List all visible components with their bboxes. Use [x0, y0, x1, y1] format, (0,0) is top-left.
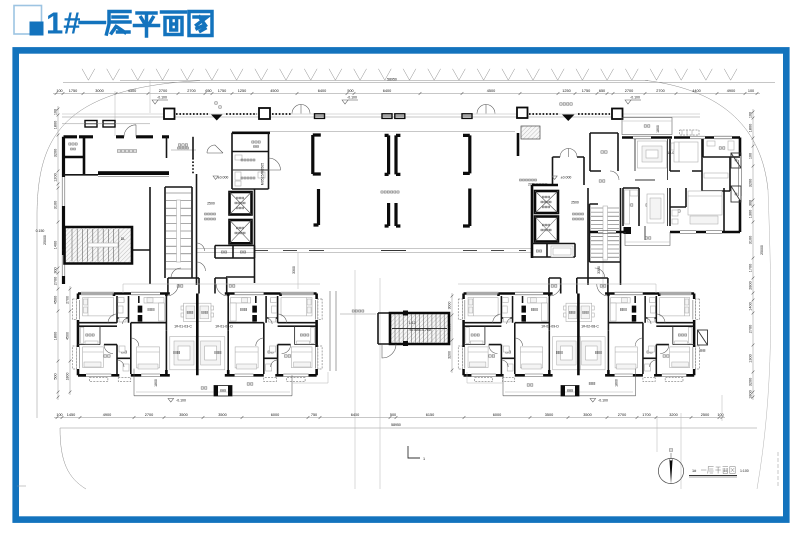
svg-text:2700: 2700 — [159, 89, 167, 93]
svg-text:1#-01-05-D: 1#-01-05-D — [215, 324, 233, 328]
svg-text:1800: 1800 — [65, 373, 69, 381]
svg-text:1#-01-03-C: 1#-01-03-C — [174, 324, 192, 328]
svg-text:100: 100 — [53, 109, 57, 115]
svg-text:1300: 1300 — [748, 354, 752, 362]
svg-text:6150: 6150 — [426, 413, 434, 417]
svg-text:100: 100 — [748, 89, 754, 93]
svg-text:3300: 3300 — [292, 266, 296, 274]
svg-text:25000: 25000 — [760, 245, 764, 255]
svg-text:1800: 1800 — [748, 390, 752, 398]
svg-text:25000: 25000 — [43, 235, 47, 245]
svg-text:4500: 4500 — [487, 89, 495, 93]
svg-text:3500: 3500 — [583, 413, 591, 417]
svg-text:3200: 3200 — [53, 149, 57, 157]
svg-text:4300: 4300 — [128, 89, 136, 93]
svg-text:1800: 1800 — [748, 124, 752, 132]
svg-text:2500: 2500 — [571, 201, 579, 205]
svg-text:100: 100 — [56, 89, 62, 93]
svg-text:1800: 1800 — [656, 125, 660, 133]
svg-text:1: 1 — [423, 457, 425, 461]
svg-text:2700: 2700 — [618, 413, 626, 417]
svg-text:1#-02-09-D: 1#-02-09-D — [541, 324, 559, 328]
svg-text:3200: 3200 — [748, 179, 752, 187]
svg-text:M0515/M0505: M0515/M0505 — [261, 163, 265, 185]
svg-text:1:100: 1:100 — [740, 469, 749, 473]
svg-text:58950: 58950 — [391, 423, 401, 427]
svg-text:3500: 3500 — [218, 413, 226, 417]
svg-text:100: 100 — [56, 413, 62, 417]
svg-text:1:12: 1:12 — [409, 321, 416, 325]
svg-text:2500: 2500 — [701, 413, 709, 417]
svg-text:4500: 4500 — [270, 89, 278, 93]
svg-text:2700: 2700 — [187, 89, 195, 93]
svg-text:100: 100 — [748, 153, 752, 159]
svg-text:±0.000: ±0.000 — [561, 176, 572, 180]
svg-text:1750: 1750 — [69, 89, 77, 93]
svg-text:1#: 1# — [46, 6, 80, 41]
svg-text:3100: 3100 — [53, 201, 57, 209]
svg-text:2800: 2800 — [748, 281, 752, 289]
svg-text:1400: 1400 — [53, 241, 57, 249]
svg-text:1800: 1800 — [615, 379, 619, 387]
svg-text:6000: 6000 — [493, 413, 501, 417]
svg-text:4900: 4900 — [727, 89, 735, 93]
svg-text:3200: 3200 — [748, 378, 752, 386]
svg-text:3500: 3500 — [545, 413, 553, 417]
svg-text:±0.000: ±0.000 — [218, 176, 229, 180]
svg-text:-0.100: -0.100 — [347, 96, 357, 100]
svg-text:1450: 1450 — [67, 413, 75, 417]
svg-text:2500: 2500 — [207, 202, 215, 206]
svg-text:4400: 4400 — [692, 89, 700, 93]
svg-text:2700: 2700 — [748, 325, 752, 333]
svg-text:1700: 1700 — [748, 264, 752, 272]
svg-text:6400: 6400 — [318, 89, 326, 93]
svg-text:6000: 6000 — [271, 413, 279, 417]
svg-text:1250: 1250 — [562, 89, 570, 93]
svg-text:500: 500 — [53, 373, 57, 379]
svg-text:-0.100: -0.100 — [176, 399, 186, 403]
svg-text:300: 300 — [748, 200, 752, 206]
svg-text:1400: 1400 — [748, 302, 752, 310]
svg-text:1750: 1750 — [218, 89, 226, 93]
svg-text:1800: 1800 — [53, 332, 57, 340]
svg-text:4500: 4500 — [53, 296, 57, 304]
svg-text:300: 300 — [53, 267, 57, 273]
svg-text:3200: 3200 — [669, 413, 677, 417]
svg-text:2700: 2700 — [65, 296, 69, 304]
svg-text:3100: 3100 — [748, 236, 752, 244]
svg-text:-0.100: -0.100 — [598, 399, 608, 403]
svg-text:1800: 1800 — [53, 121, 57, 129]
svg-text:-0.100: -0.100 — [157, 96, 167, 100]
svg-text:±0.000/-0.700: ±0.000/-0.700 — [409, 328, 431, 332]
svg-text:500: 500 — [347, 89, 353, 93]
svg-text:6400: 6400 — [383, 89, 391, 93]
svg-text:3000: 3000 — [447, 302, 451, 310]
svg-text:2700: 2700 — [53, 277, 57, 285]
svg-text:0.150: 0.150 — [36, 229, 45, 233]
svg-text:58950: 58950 — [387, 78, 397, 82]
svg-text:1750: 1750 — [582, 89, 590, 93]
svg-text:4900: 4900 — [103, 413, 111, 417]
svg-text:1300: 1300 — [748, 210, 752, 218]
svg-text:DL: DL — [121, 237, 126, 241]
svg-text:3000: 3000 — [95, 89, 103, 93]
svg-text:500: 500 — [390, 413, 396, 417]
svg-text:650: 650 — [599, 89, 605, 93]
svg-text:100: 100 — [717, 413, 723, 417]
svg-text:-0.100: -0.100 — [630, 96, 640, 100]
svg-text:3200: 3200 — [447, 351, 451, 359]
svg-text:100: 100 — [748, 112, 752, 118]
svg-text:1250: 1250 — [238, 89, 246, 93]
svg-text:3500: 3500 — [179, 413, 187, 417]
svg-text:650: 650 — [205, 89, 211, 93]
svg-text:2700: 2700 — [656, 89, 664, 93]
svg-text:1300: 1300 — [447, 324, 451, 332]
svg-text:1200: 1200 — [53, 173, 57, 181]
svg-text:1800: 1800 — [154, 379, 158, 387]
svg-text:4500: 4500 — [65, 332, 69, 340]
svg-text:2700: 2700 — [145, 413, 153, 417]
svg-text:1700: 1700 — [642, 413, 650, 417]
svg-text:1#-02-08-C: 1#-02-08-C — [581, 324, 599, 328]
svg-text:750: 750 — [311, 413, 317, 417]
svg-text:2700: 2700 — [625, 89, 633, 93]
